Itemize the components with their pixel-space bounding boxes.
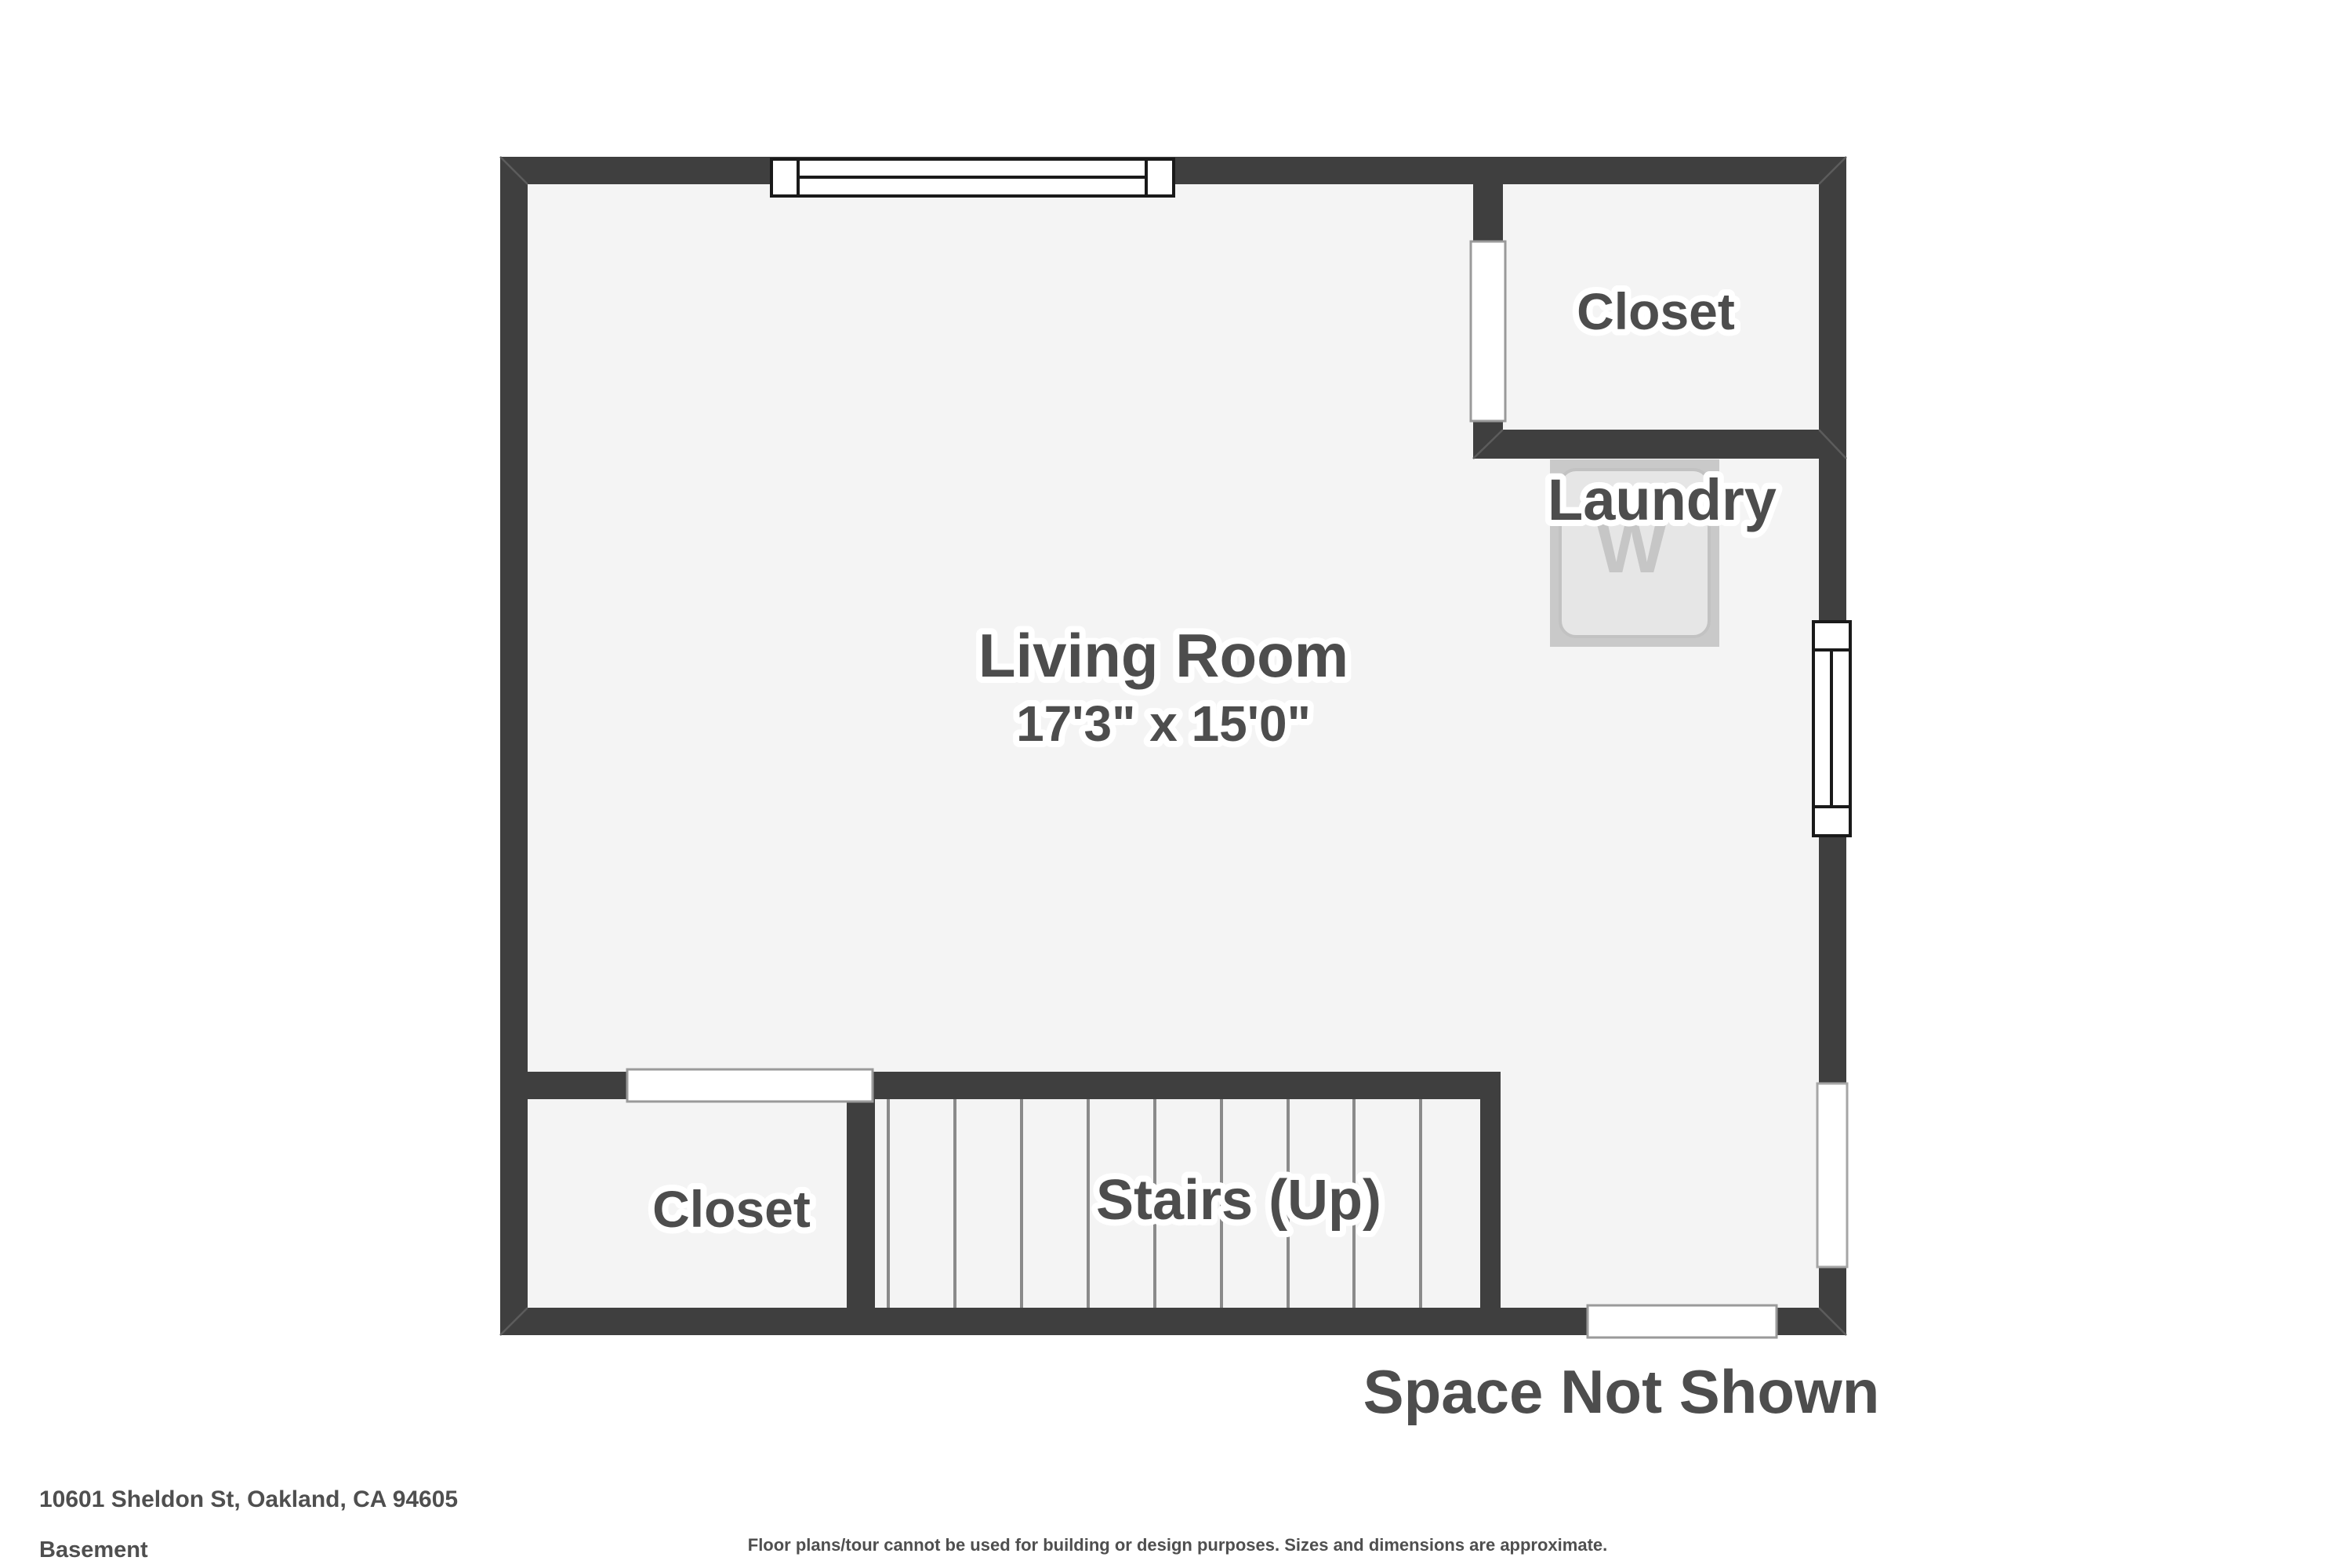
stairs-label: Stairs (Up)	[1096, 1169, 1381, 1232]
closet-top-right-bottom-wall	[1473, 430, 1846, 459]
stairs-right-wall	[1480, 1099, 1501, 1308]
wall-left	[500, 157, 528, 1335]
laundry-label: Laundry	[1548, 467, 1777, 532]
floor-plan-page: W Closet Laundry Living Room 17'3" x 15'…	[0, 0, 2352, 1568]
living-room-label: Living Room	[978, 621, 1348, 690]
closet-bottom-left-label: Closet	[652, 1180, 811, 1238]
bottom-wall-exit-opening	[1588, 1305, 1777, 1338]
top-wall-window-icon	[771, 159, 1174, 196]
closet-bottom-left-right-wall	[847, 1072, 875, 1335]
space-not-shown-label: Space Not Shown	[1363, 1357, 1880, 1426]
address-text: 10601 Sheldon St, Oakland, CA 94605	[39, 1486, 458, 1512]
floor-plan: W Closet Laundry Living Room 17'3" x 15'…	[0, 0, 2352, 1568]
disclaimer-text: Floor plans/tour cannot be used for buil…	[748, 1535, 1608, 1555]
right-wall-window-lower-icon	[1817, 1083, 1847, 1267]
closet-top-right-opening	[1471, 241, 1505, 421]
closet-bottom-left-opening	[627, 1069, 873, 1102]
closet-top-right-label: Closet	[1577, 282, 1735, 340]
stairs-top-wall	[875, 1072, 1501, 1099]
right-wall-window-upper-icon	[1813, 622, 1850, 836]
level-text: Basement	[39, 1537, 148, 1563]
living-room-dimensions: 17'3" x 15'0"	[1016, 695, 1311, 752]
